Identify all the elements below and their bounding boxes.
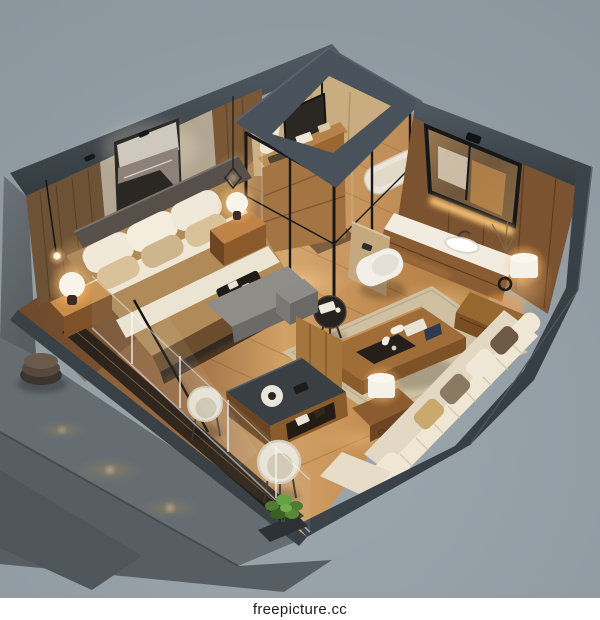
watermark-bar: freepicture.cc (0, 598, 600, 620)
recessed-floor-light (108, 468, 113, 473)
watermark-text: freepicture.cc (253, 601, 347, 618)
apartment-illustration (0, 0, 600, 598)
vanity-drum-lamp (502, 244, 546, 288)
recessed-floor-light (168, 506, 173, 511)
screenshot-frame: freepicture.cc (0, 0, 600, 620)
recessed-floor-light (60, 428, 64, 432)
